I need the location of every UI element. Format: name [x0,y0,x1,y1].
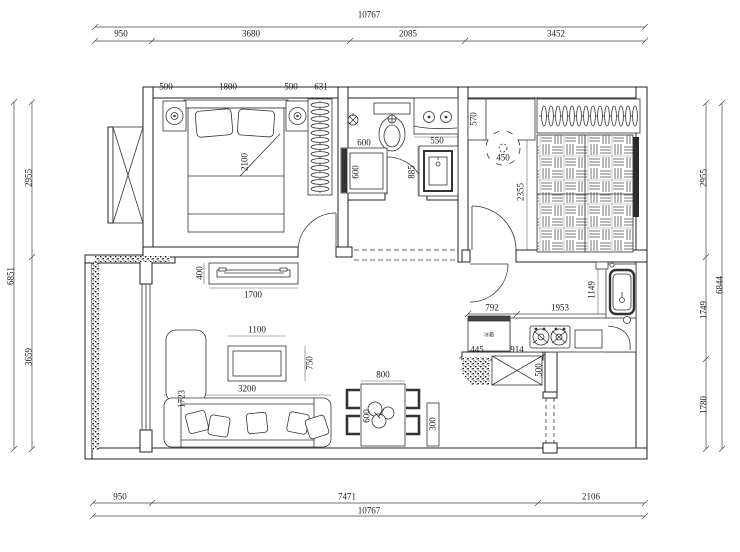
dim-table-1100: 1100 [248,326,266,335]
kitchen-door [470,264,508,302]
dim-left-2955: 2955 [25,169,34,187]
washing-machine [341,148,387,193]
dim-br1-631: 631 [314,83,328,92]
dim-bottom-7471: 7471 [338,493,356,502]
vanity-cabinet [419,146,458,196]
dim-right-2955: 2955 [700,169,709,187]
dim-tv-1700: 1700 [244,291,262,300]
dim-top-3452: 3452 [547,30,565,39]
dim-vanity-550: 550 [430,137,444,146]
dim-dining-600: 600 [363,409,372,423]
dim-top-3680: 3680 [242,30,260,39]
dim-top-total: 10767 [358,11,381,20]
dim-kitchen-445: 445 [470,346,484,355]
floor-plan-drawing [0,0,740,552]
dim-right-1780: 1780 [700,396,709,414]
dim-br2-570: 570 [470,112,479,126]
dim-top-2085: 2085 [399,30,417,39]
dim-shaft-500: 500 [535,363,544,377]
floor-plan: 10767 950 3680 2085 3452 950 7471 2106 1… [0,0,740,552]
dim-left-3659: 3659 [25,348,34,366]
wardrobe-hangers-vertical [308,99,332,195]
bedroom2-door [472,206,516,250]
dim-kitchen-914: 914 [510,346,524,355]
second-bedroom [468,99,640,252]
dim-console-300: 300 [429,417,438,431]
fridge-label: 冰箱 [484,334,494,339]
sofa [164,398,331,447]
washbasin-counter [414,98,458,134]
coffee-table [228,346,286,381]
dim-washer-600w: 600 [357,139,371,148]
dim-table-750: 750 [306,356,315,370]
cutting-board [575,330,602,348]
dim-br1-500a: 500 [159,83,173,92]
dim-bath-885: 885 [408,165,417,179]
balcony-wall-hatch [92,263,99,450]
dim-zone-1723: 1723 [178,390,187,408]
dim-br2-2355: 2355 [517,183,526,201]
dim-washer-600d: 600 [352,165,361,179]
dim-dining-800: 800 [376,371,390,380]
wardrobe-hangers-horizontal [537,99,640,133]
tv-stand [209,263,298,284]
dim-kitchen-792: 792 [485,304,499,313]
balcony-window [142,284,150,430]
toilet [374,103,410,151]
dim-right-1749: 1749 [700,301,709,319]
dim-sofa-3200: 3200 [238,385,256,394]
bedroom1-door [298,213,336,251]
dim-bottom-2106: 2106 [582,493,600,502]
dim-kitchen-1149: 1149 [588,281,597,299]
floor-drain-icon [348,113,358,125]
dim-bottom-total: 10767 [358,507,381,516]
dim-br1-500b: 500 [284,83,298,92]
dim-right-total: 6844 [716,276,725,294]
dim-left-total: 6851 [7,267,16,285]
dim-bottom-950: 950 [113,493,127,502]
double-bed [184,100,288,232]
dim-top-950: 950 [114,30,128,39]
dim-br2-450: 450 [496,154,510,163]
hallway-opening [354,250,458,260]
nightstand-left [163,101,186,131]
kitchen-sink [596,262,634,314]
dim-br1-1800: 1800 [219,83,237,92]
nightstand-right [286,101,309,131]
bay-window [113,127,143,223]
shaft-wall-hatch [462,357,490,385]
dim-kitchen-1953: 1953 [551,304,569,313]
dim-tv-400: 400 [196,266,205,280]
gas-stove [530,326,570,348]
tatami-bed [537,135,633,252]
entry-opening [546,398,554,443]
dim-bed-2100: 2100 [241,153,250,171]
